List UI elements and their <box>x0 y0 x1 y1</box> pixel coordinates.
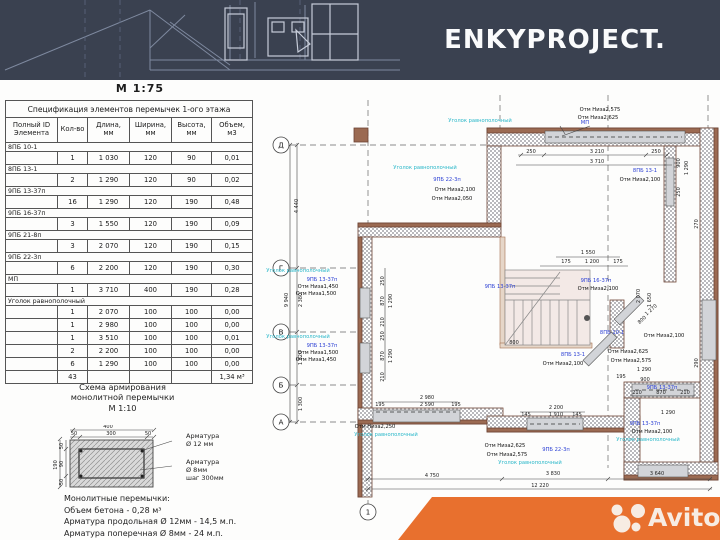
rebar-scheme-title: Схема армирования монолитной перемычки М… <box>30 382 215 413</box>
svg-text:3 830: 3 830 <box>546 471 560 477</box>
svg-text:90: 90 <box>59 461 65 467</box>
svg-text:195: 195 <box>375 402 385 408</box>
svg-text:Уголок равнополочный: Уголок равнополочный <box>266 333 329 340</box>
svg-text:1 910: 1 910 <box>549 412 563 418</box>
svg-text:Отм Низа2,625: Отм Низа2,625 <box>485 443 526 449</box>
svg-text:9ПБ 13-37п: 9ПБ 13-37п <box>307 343 338 349</box>
svg-text:Отм Низа2,250: Отм Низа2,250 <box>355 424 396 430</box>
rebar-longitudinal-label: Арматура Ø 12 мм <box>186 432 219 448</box>
svg-text:3 210: 3 210 <box>590 149 604 155</box>
svg-text:210: 210 <box>380 317 386 327</box>
svg-text:Отм Низа2,575: Отм Низа2,575 <box>611 358 652 364</box>
svg-text:Б: Б <box>279 382 284 390</box>
svg-text:9ПБ 13-37п: 9ПБ 13-37п <box>630 421 661 427</box>
svg-text:270: 270 <box>694 219 700 229</box>
svg-text:Отм Низа2,625: Отм Низа2,625 <box>578 115 619 121</box>
svg-text:9ПБ 16-37п: 9ПБ 16-37п <box>581 278 612 284</box>
svg-text:9ПБ 13-37п: 9ПБ 13-37п <box>485 284 516 290</box>
svg-text:Уголок равнополочный: Уголок равнополочный <box>354 431 417 438</box>
svg-text:4 440: 4 440 <box>294 199 300 213</box>
svg-text:3 710: 3 710 <box>590 159 604 165</box>
svg-text:195: 195 <box>451 402 461 408</box>
svg-text:8ПБ 10-1: 8ПБ 10-1 <box>600 330 624 336</box>
svg-text:9ПБ 22-3п: 9ПБ 22-3п <box>433 177 461 183</box>
svg-text:Отм Низа2,575: Отм Низа2,575 <box>580 107 621 113</box>
svg-text:175: 175 <box>613 259 623 265</box>
svg-text:Отм Низа2,100: Отм Низа2,100 <box>620 177 661 183</box>
svg-text:Отм Низа1,450: Отм Низа1,450 <box>296 357 337 363</box>
svg-text:Уголок равнополочный: Уголок равнополочный <box>616 436 679 443</box>
svg-text:250: 250 <box>676 187 682 197</box>
svg-text:9ПБ 13-37п: 9ПБ 13-37п <box>647 385 678 391</box>
svg-text:50: 50 <box>145 431 151 437</box>
material-notes: Монолитные перемычки: Объем бетона - 0,2… <box>64 493 324 539</box>
svg-text:250: 250 <box>380 276 386 286</box>
svg-text:2 590: 2 590 <box>420 402 434 408</box>
svg-text:1 200: 1 200 <box>585 259 599 265</box>
svg-text:Отм Низа2,100: Отм Низа2,100 <box>644 333 685 339</box>
svg-text:Отм Низа2,100: Отм Низа2,100 <box>543 361 584 367</box>
svg-text:3 640: 3 640 <box>650 471 664 477</box>
svg-text:Д: Д <box>278 142 284 150</box>
svg-text:210: 210 <box>680 390 690 396</box>
svg-text:Отм Низа1,450: Отм Низа1,450 <box>298 284 339 290</box>
svg-text:250: 250 <box>651 149 661 155</box>
svg-text:Отм Низа2,575: Отм Низа2,575 <box>487 452 528 458</box>
svg-text:1 290: 1 290 <box>388 349 394 363</box>
svg-text:Отм Низа2,050: Отм Низа2,050 <box>432 196 473 202</box>
svg-text:900: 900 <box>640 377 650 383</box>
svg-text:250: 250 <box>526 149 536 155</box>
svg-text:Отм Низа1,500: Отм Низа1,500 <box>298 350 339 356</box>
rebar-transverse-label: Арматура Ø 8мм шаг 300мм <box>186 458 224 482</box>
svg-text:870: 870 <box>380 351 386 361</box>
svg-text:Уголок равнополочный: Уголок равнополочный <box>393 164 456 171</box>
svg-text:195: 195 <box>616 374 626 380</box>
svg-text:9ПБ 13-37п: 9ПБ 13-37п <box>307 277 338 283</box>
svg-text:175: 175 <box>561 259 571 265</box>
svg-text:Отм Низа2,100: Отм Низа2,100 <box>578 286 619 292</box>
svg-text:300: 300 <box>106 431 116 437</box>
svg-text:2 200: 2 200 <box>549 405 563 411</box>
svg-text:Отм Низа2,100: Отм Низа2,100 <box>632 429 673 435</box>
svg-text:8ПБ 13-1: 8ПБ 13-1 <box>561 352 585 358</box>
svg-text:50: 50 <box>71 431 77 437</box>
svg-text:1 300: 1 300 <box>298 397 304 411</box>
svg-text:145: 145 <box>521 412 531 418</box>
svg-text:Отм Низа2,625: Отм Низа2,625 <box>608 349 649 355</box>
svg-text:1 550: 1 550 <box>581 250 595 256</box>
svg-text:Уголок равнополочный: Уголок равнополочный <box>448 117 511 124</box>
svg-text:50: 50 <box>59 479 65 485</box>
svg-text:2 070: 2 070 <box>636 289 642 303</box>
svg-text:50: 50 <box>59 443 65 449</box>
svg-text:9 940: 9 940 <box>284 293 290 307</box>
svg-text:210: 210 <box>632 390 642 396</box>
svg-text:1 290: 1 290 <box>684 161 690 175</box>
svg-text:1 290: 1 290 <box>388 294 394 308</box>
svg-text:210: 210 <box>380 372 386 382</box>
svg-text:800: 800 <box>509 340 519 346</box>
drawing-sheet: { "colors":{"navy":"#3A4150","orange":"#… <box>0 0 720 540</box>
svg-text:900: 900 <box>676 158 682 168</box>
svg-text:Отм Низа1,500: Отм Низа1,500 <box>296 291 337 297</box>
svg-text:1 290: 1 290 <box>637 367 651 373</box>
svg-text:2 980: 2 980 <box>420 395 434 401</box>
svg-text:Уголок равнополочный: Уголок равнополочный <box>498 459 561 466</box>
avito-wordmark: Avito <box>648 503 720 532</box>
svg-text:Уголок равнополочный: Уголок равнополочный <box>266 267 329 274</box>
svg-text:12 220: 12 220 <box>531 483 549 489</box>
svg-text:1: 1 <box>366 509 370 517</box>
svg-text:1 290: 1 290 <box>661 410 675 416</box>
svg-text:290: 290 <box>694 358 700 368</box>
svg-text:Отм Низа2,100: Отм Низа2,100 <box>435 187 476 193</box>
svg-text:870: 870 <box>380 296 386 306</box>
svg-text:250: 250 <box>380 331 386 341</box>
svg-text:9ПБ 22-3п: 9ПБ 22-3п <box>542 447 570 453</box>
svg-text:400: 400 <box>103 425 113 430</box>
svg-text:145: 145 <box>572 412 582 418</box>
svg-text:4 750: 4 750 <box>425 473 439 479</box>
svg-text:8ПБ 13-1: 8ПБ 13-1 <box>633 168 657 174</box>
stair <box>500 237 592 348</box>
